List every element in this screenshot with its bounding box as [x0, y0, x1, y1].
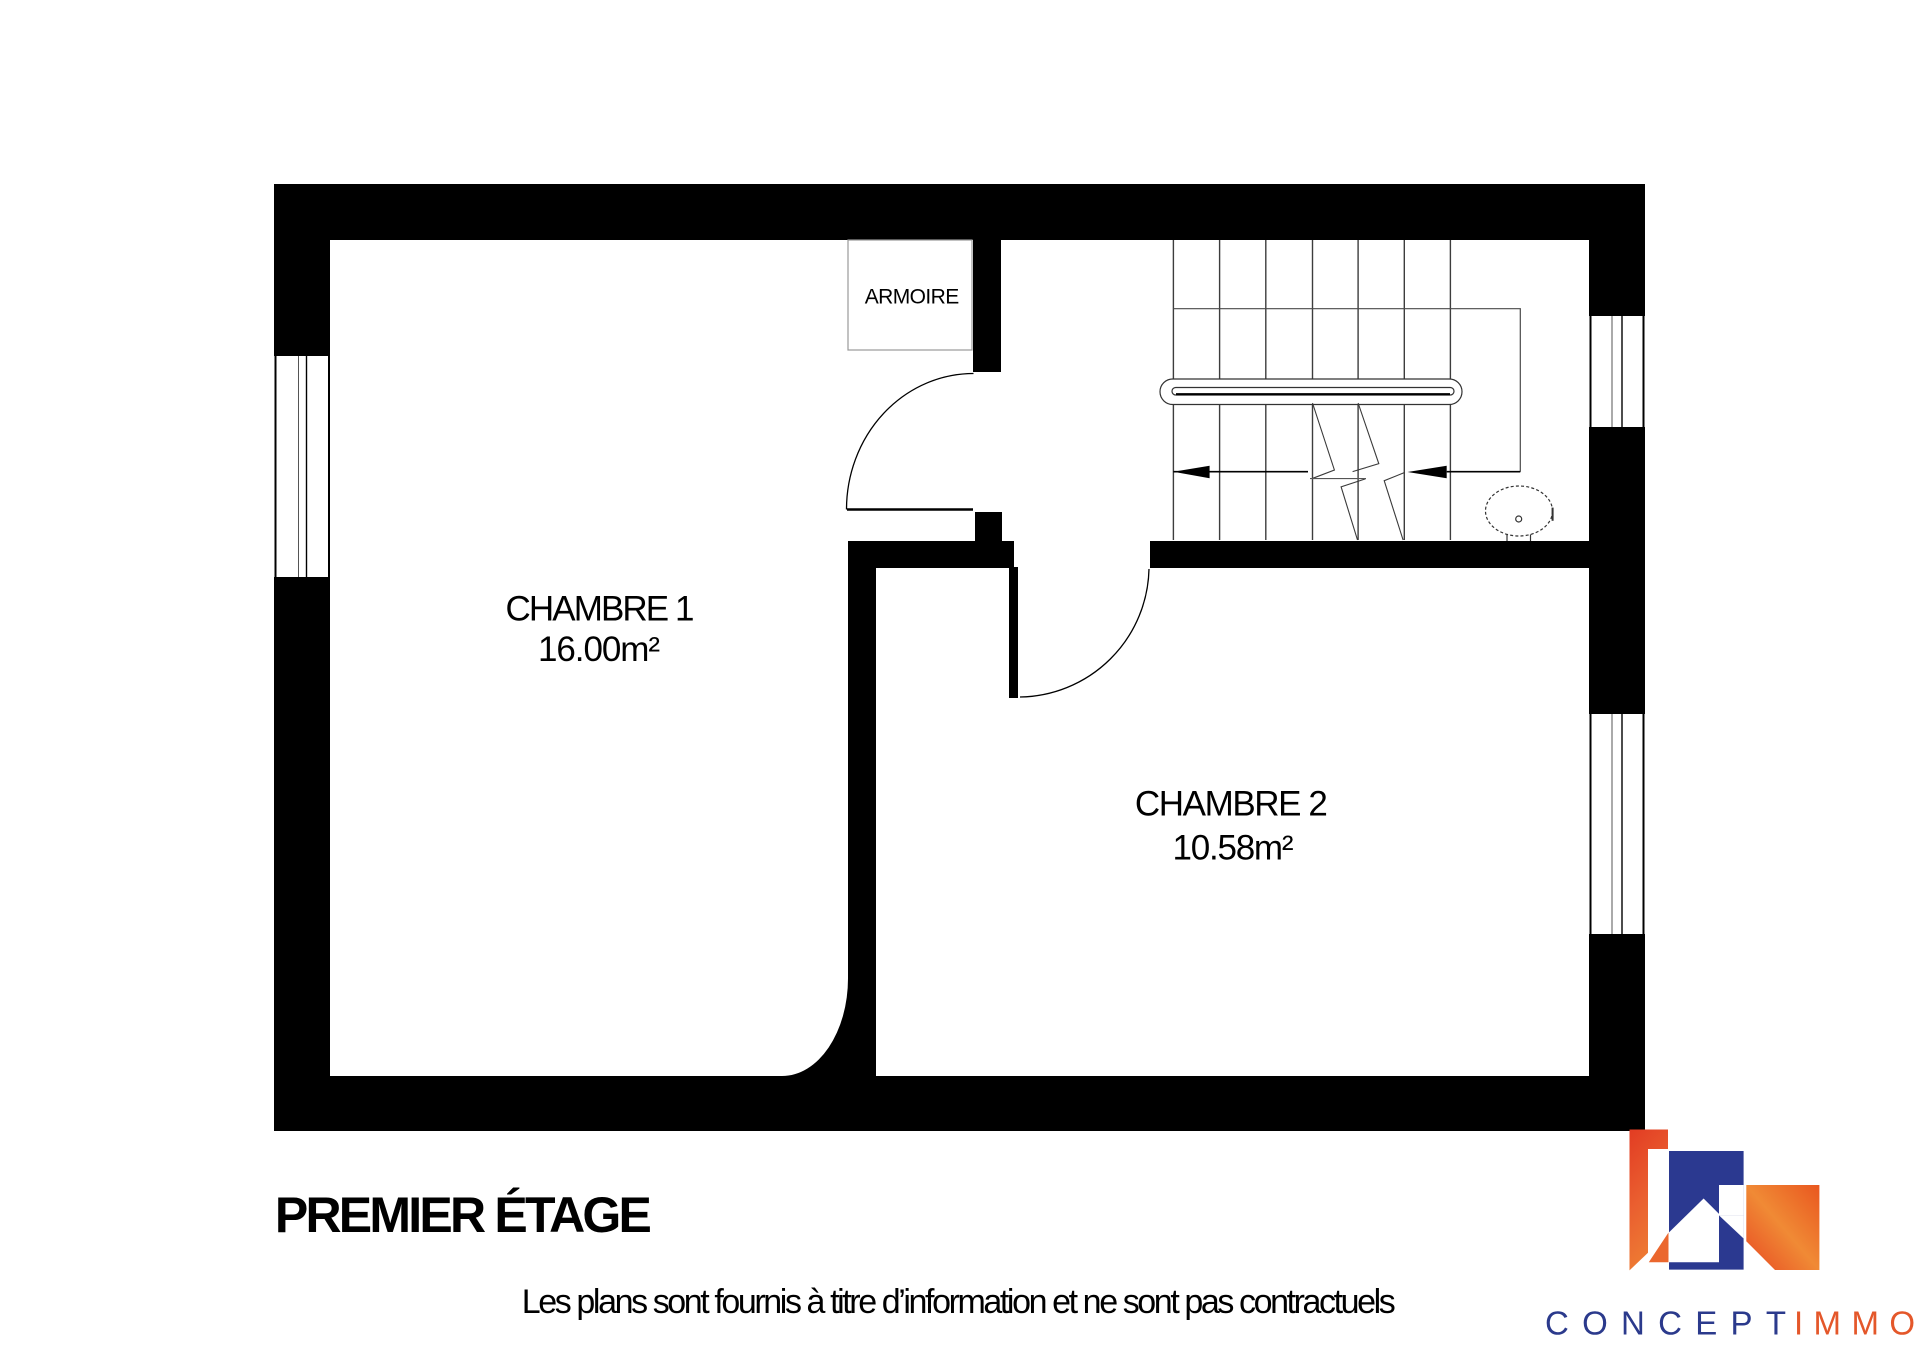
svg-text:IMMO: IMMO [1794, 1305, 1915, 1342]
svg-text:CONCEPT: CONCEPT [1545, 1305, 1786, 1342]
svg-text:CHAMBRE 2: CHAMBRE 2 [1135, 784, 1328, 823]
svg-text:Les plans sont fournis à titre: Les plans sont fournis à titre d’informa… [522, 1283, 1396, 1321]
svg-text:PREMIER ÉTAGE: PREMIER ÉTAGE [275, 1187, 652, 1243]
svg-text:CHAMBRE 1: CHAMBRE 1 [506, 590, 695, 629]
svg-text:16.00m²: 16.00m² [538, 630, 660, 669]
svg-text:ARMOIRE: ARMOIRE [865, 286, 960, 309]
svg-text:10.58m²: 10.58m² [1173, 829, 1294, 868]
